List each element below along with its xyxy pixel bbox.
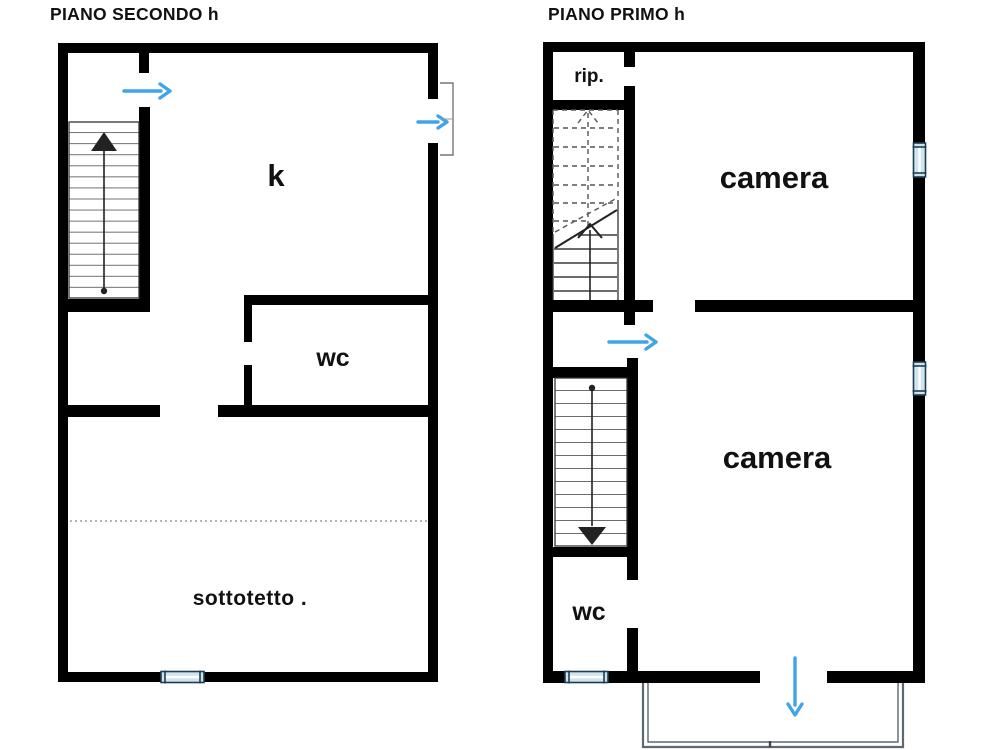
room-label-wc-primo: wc bbox=[571, 598, 605, 626]
window-bottom-secondo bbox=[161, 671, 204, 684]
wall-segment bbox=[627, 358, 638, 580]
plan-title-primo: PIANO PRIMO h bbox=[548, 4, 685, 24]
room-label-bedroom-upper: camera bbox=[720, 160, 829, 195]
walls-primo bbox=[543, 42, 925, 683]
wall-segment bbox=[428, 43, 438, 99]
wall-segment bbox=[548, 367, 630, 378]
door-arrow-balcony-primo bbox=[788, 658, 802, 715]
plan-title-secondo: PIANO SECONDO h bbox=[50, 4, 219, 24]
stair-start-dot bbox=[101, 288, 107, 294]
wall-segment bbox=[624, 52, 635, 67]
room-label-wc-secondo: wc bbox=[315, 344, 349, 372]
wall-segment bbox=[543, 42, 553, 683]
wall-segment bbox=[218, 405, 438, 417]
staircase-primo-up bbox=[553, 110, 618, 300]
window-bottom-primo bbox=[565, 671, 608, 684]
wall-segment bbox=[58, 299, 150, 312]
floorplan-canvas: PIANO SECONDO h bbox=[0, 0, 1000, 750]
room-label-attic: sottotetto . bbox=[193, 587, 307, 610]
room-label-storage: rip. bbox=[574, 66, 604, 87]
door-arrow-right-secondo bbox=[418, 116, 447, 128]
wall-segment bbox=[139, 107, 150, 312]
balcony-outline bbox=[643, 683, 903, 748]
staircase-primo-down bbox=[555, 378, 627, 546]
door-arrow-top-secondo bbox=[124, 84, 170, 98]
wall-segment bbox=[543, 42, 925, 52]
wall-segment bbox=[627, 628, 638, 683]
window-right-upper-primo bbox=[913, 143, 927, 177]
wall-segment bbox=[58, 43, 438, 53]
wall-segment bbox=[543, 100, 635, 110]
wall-segment bbox=[247, 295, 428, 305]
wall-segment bbox=[548, 300, 653, 312]
wall-segment bbox=[139, 53, 149, 73]
stair-treads bbox=[555, 378, 627, 546]
room-label-bedroom-lower: camera bbox=[723, 440, 832, 475]
wall-segment bbox=[695, 300, 925, 312]
wall-segment bbox=[548, 547, 627, 557]
wall-segment bbox=[827, 671, 925, 683]
room-label-kitchen: k bbox=[267, 158, 285, 193]
plan-piano-secondo: PIANO SECONDO h bbox=[50, 4, 453, 684]
plan-piano-primo: PIANO PRIMO h bbox=[543, 4, 927, 748]
balcony-door-outline-secondo bbox=[440, 83, 453, 155]
wall-segment bbox=[244, 295, 252, 342]
wall-segment bbox=[58, 43, 68, 682]
wall-segment bbox=[58, 672, 438, 682]
staircase-secondo bbox=[69, 122, 139, 298]
wall-segment bbox=[624, 86, 635, 325]
door-arrow-mid-primo bbox=[609, 335, 656, 349]
floorplan-drawing: PIANO SECONDO h bbox=[0, 0, 1000, 750]
window-right-lower-primo bbox=[913, 362, 927, 395]
wall-segment bbox=[58, 405, 160, 417]
